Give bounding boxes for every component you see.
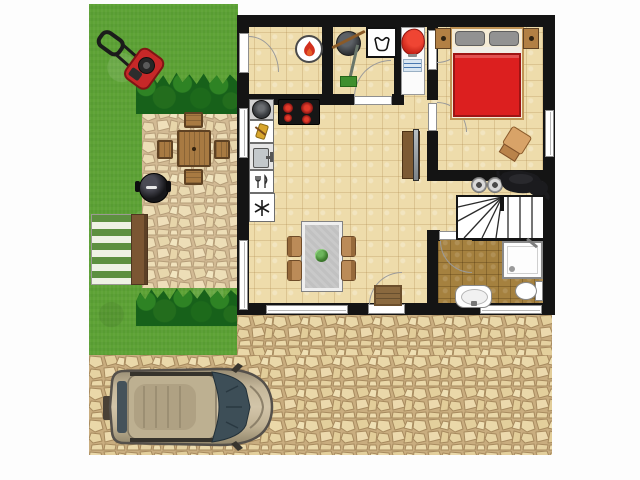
chair-back xyxy=(351,237,355,256)
patio-chair-west xyxy=(157,140,173,159)
stair-newel xyxy=(500,195,504,211)
shower-drain xyxy=(509,266,515,272)
door-boiler-garden-leaf xyxy=(239,33,249,73)
laundry-faucet xyxy=(408,54,417,57)
dining-chair-2 xyxy=(287,260,302,281)
cutlery-icon xyxy=(253,173,271,191)
dog-bowl-1 xyxy=(471,177,487,193)
dining-chair-4 xyxy=(341,260,356,281)
driveway-paving-front xyxy=(237,315,552,357)
window-bathroom-bottom xyxy=(480,305,542,314)
toilet xyxy=(515,282,537,300)
chair-back xyxy=(288,237,292,256)
chair-back xyxy=(288,261,292,280)
burner-3 xyxy=(284,114,292,122)
floor-plan-canvas xyxy=(0,0,640,480)
dining-chair-3 xyxy=(341,236,356,257)
pillow-left xyxy=(455,31,485,46)
nightstand-knob xyxy=(529,36,534,41)
patio-chair-north xyxy=(184,112,203,128)
patio-chair-east xyxy=(214,140,230,159)
bed-blanket xyxy=(453,53,521,117)
dining-chair-1 xyxy=(287,236,302,257)
wall-boiler-utility xyxy=(322,22,333,105)
doormat xyxy=(374,285,402,306)
kitchen-sink xyxy=(249,143,274,170)
nightstand-left xyxy=(435,28,451,49)
snowflake-icon xyxy=(252,198,272,218)
door-utility-leaf xyxy=(354,96,392,105)
nightstand-right xyxy=(523,28,539,49)
window-living-left xyxy=(239,240,248,310)
car-rear-window xyxy=(117,381,127,433)
tv-screen xyxy=(413,129,419,181)
cutlery-drawer xyxy=(249,170,274,193)
mop-head xyxy=(340,76,357,87)
chair-back xyxy=(351,261,355,280)
burner-1 xyxy=(283,103,293,113)
kitchen-counter-pot-cell xyxy=(249,99,274,120)
laundry-label xyxy=(403,59,422,72)
utensil-cabinet xyxy=(249,120,274,143)
window-bedroom-right xyxy=(545,110,554,157)
patio-chair-south xyxy=(184,169,203,185)
burner-2 xyxy=(301,102,313,114)
sun-lounger-sideboard xyxy=(131,214,148,285)
car xyxy=(100,362,280,452)
door-bedroom-leaf xyxy=(428,103,437,131)
bathroom-sink-faucet xyxy=(471,301,477,306)
wall-toprooms-b xyxy=(392,94,404,105)
bbq-grill-handle-right xyxy=(166,181,171,192)
cooktop xyxy=(278,99,320,125)
freezer xyxy=(249,193,275,222)
bathroom-sink xyxy=(455,285,492,308)
washing-machine-icon xyxy=(371,32,393,54)
sink-faucet-handle xyxy=(270,152,273,162)
lawn-mower xyxy=(84,22,170,98)
burner-4 xyxy=(302,115,311,124)
washing-machine xyxy=(366,27,397,58)
wall-bath-left xyxy=(427,241,438,315)
window-living-bottom xyxy=(266,305,348,314)
bbq-grill-label xyxy=(146,186,157,189)
window-kitchen-left xyxy=(239,108,248,158)
staircase xyxy=(456,195,545,240)
nightstand-knob xyxy=(441,36,446,41)
pillow-right xyxy=(489,31,519,46)
boiler-stove xyxy=(295,35,323,63)
bbq-grill-handle-left xyxy=(135,181,140,192)
cooking-pot xyxy=(252,100,271,119)
table-plant xyxy=(315,249,328,262)
flame-icon xyxy=(302,40,317,58)
shower xyxy=(502,241,543,279)
patio-table-knot xyxy=(192,147,196,151)
